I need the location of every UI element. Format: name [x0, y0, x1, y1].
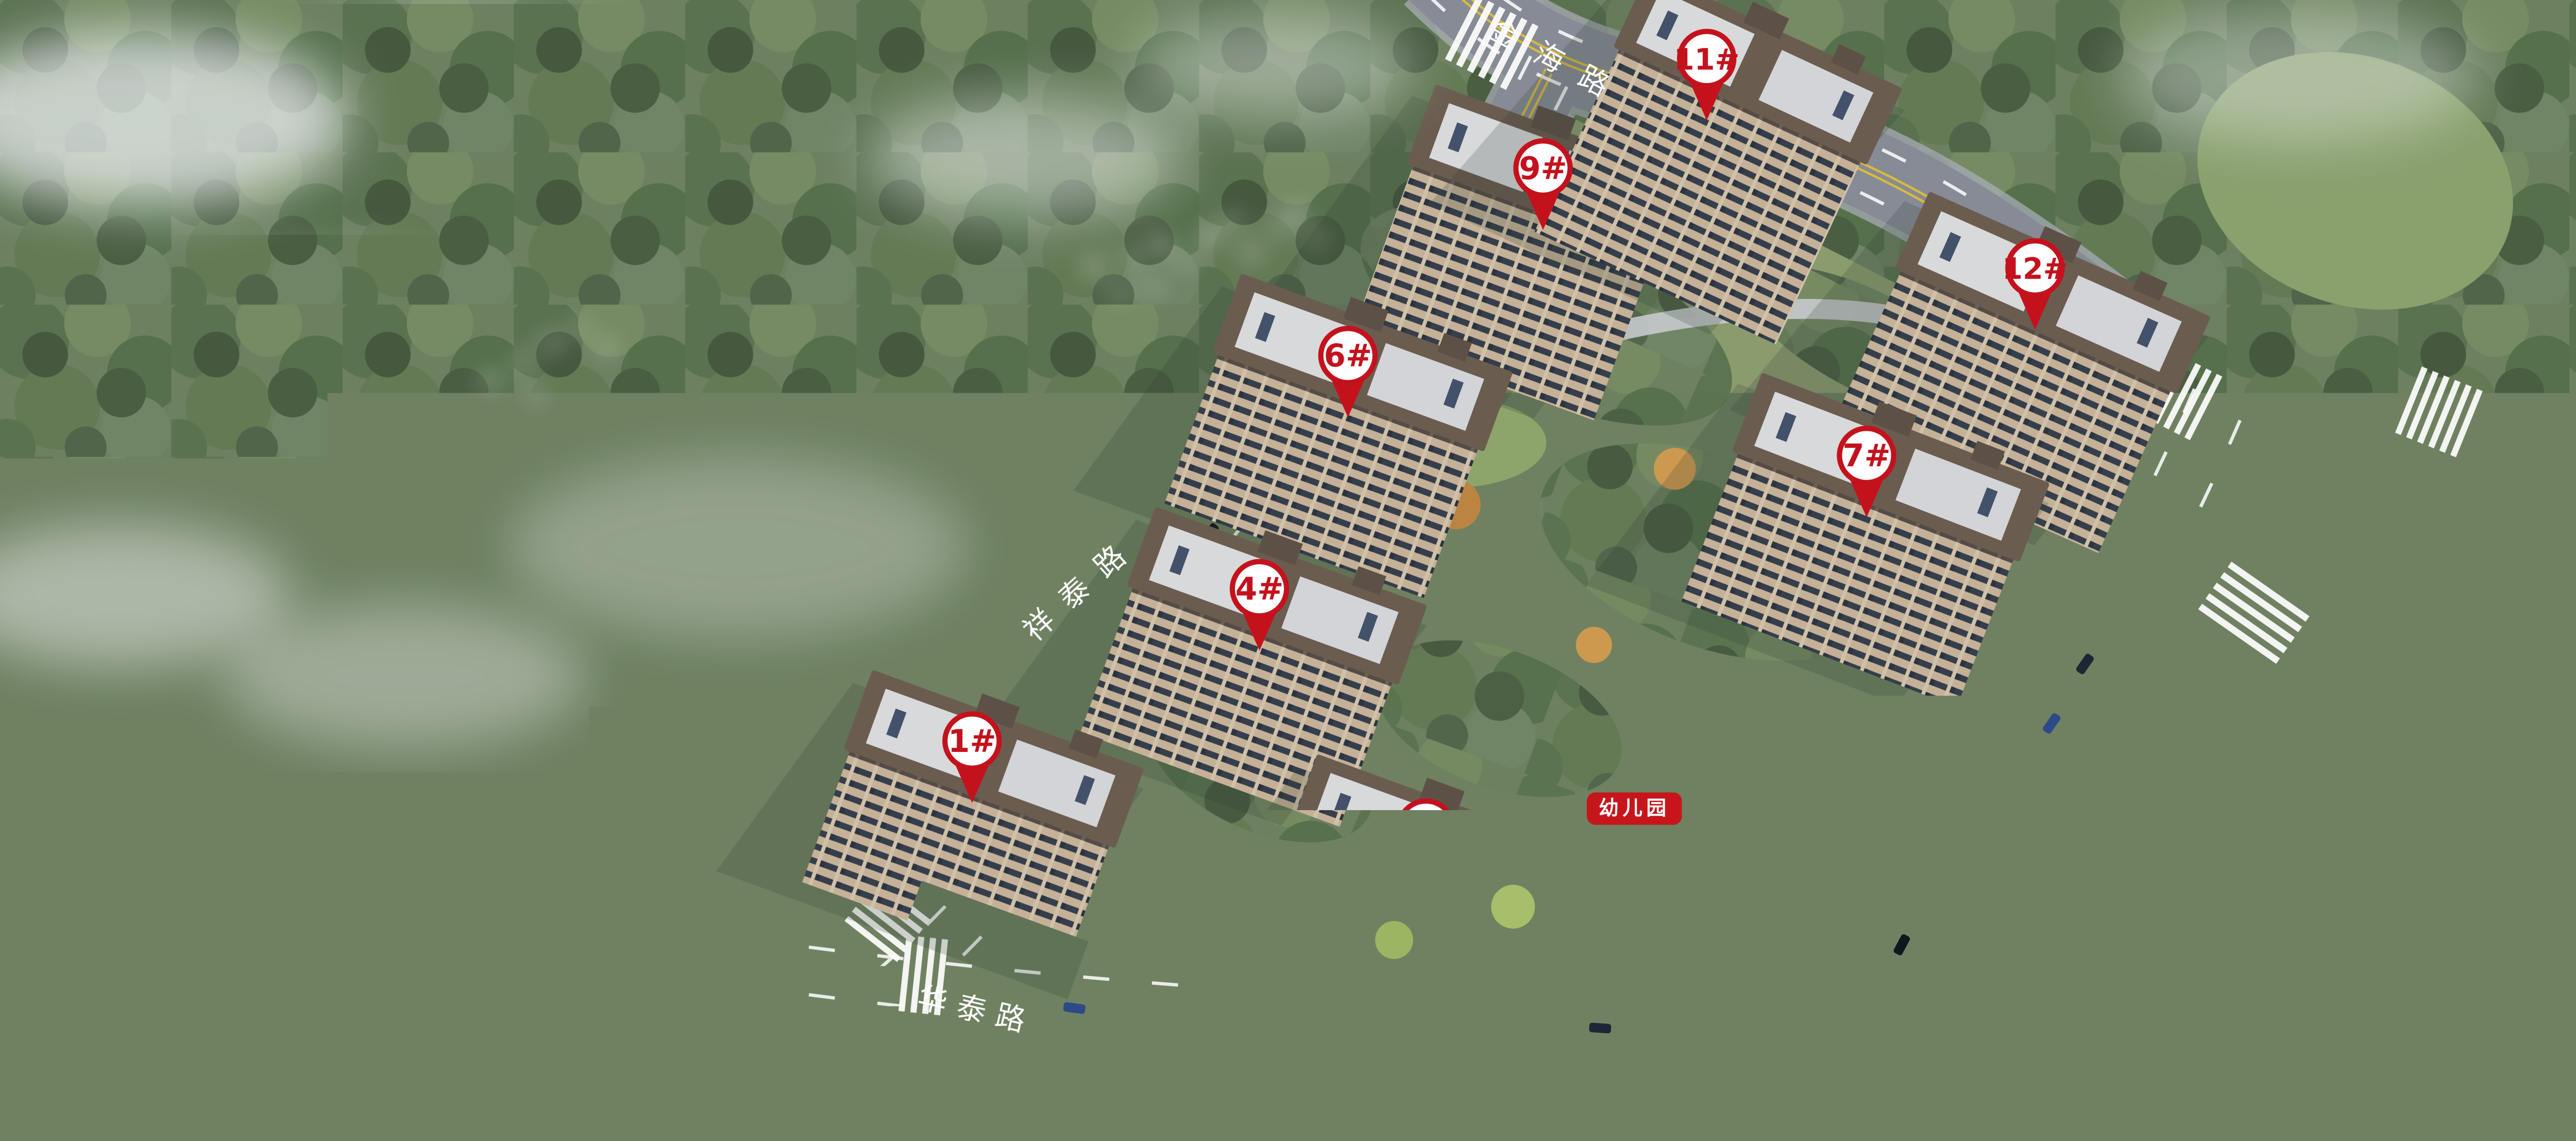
playground: [1589, 914, 1775, 1042]
svg-text:11#: 11#: [1674, 42, 1740, 77]
kindergarten-label-text: 幼儿园: [1599, 797, 1670, 820]
svg-text:2#: 2#: [1402, 810, 1450, 847]
aerial-site-rendering: 金海路 祥泰路 安泰路 华泰路 幼儿园 1# 2# 4# 6#: [0, 0, 2576, 1054]
svg-text:4#: 4#: [1235, 571, 1283, 608]
svg-text:1#: 1#: [948, 723, 996, 760]
view-caption: 鸟瞰图: [2449, 1000, 2549, 1030]
svg-text:7#: 7#: [1842, 438, 1890, 474]
svg-text:9#: 9#: [1519, 150, 1567, 187]
kindergarten-label: 幼儿园: [1587, 793, 1682, 825]
svg-text:6#: 6#: [1324, 338, 1372, 374]
svg-text:12#: 12#: [2002, 251, 2068, 286]
